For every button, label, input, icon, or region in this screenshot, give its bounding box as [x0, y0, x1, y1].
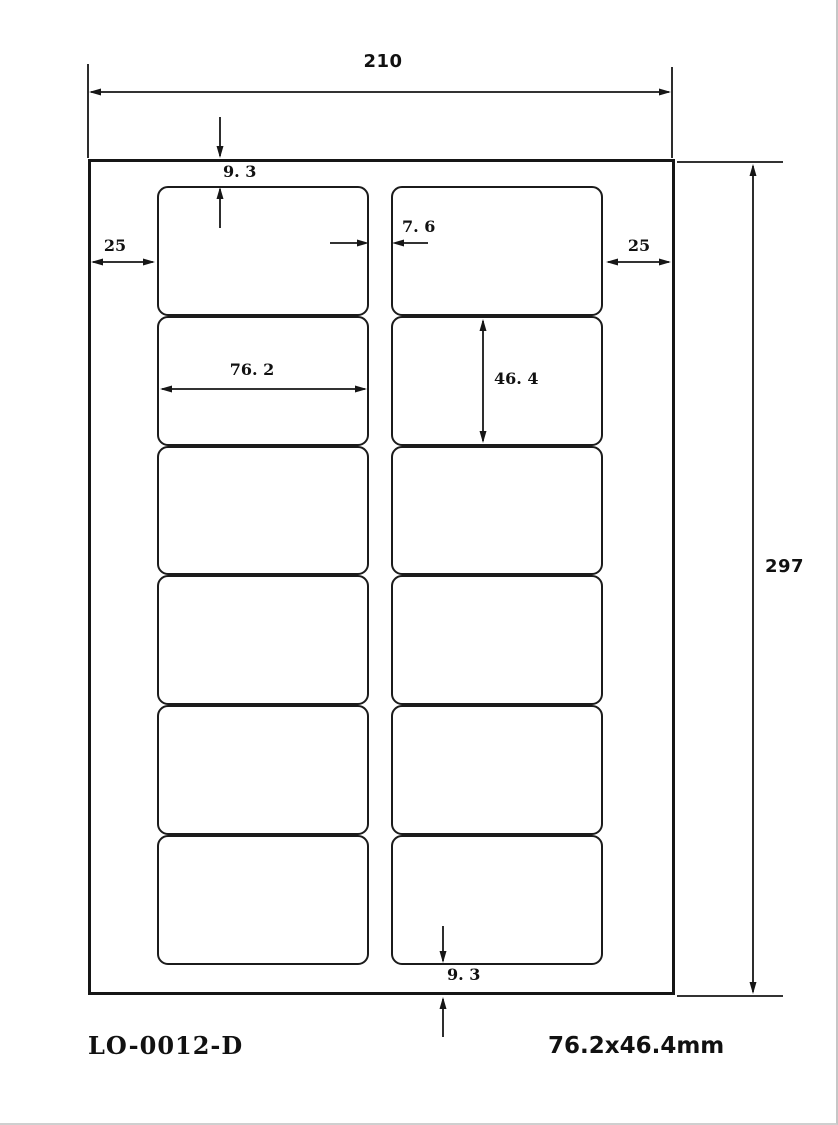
- dim-value-sheet-height: 297: [765, 558, 804, 576]
- dim-value-label-height: 46. 4: [494, 371, 539, 387]
- dim-value-label-width: 76. 2: [202, 362, 302, 378]
- label-cell-5: [157, 446, 369, 576]
- part-number: LO-0012-D: [88, 1033, 243, 1059]
- dim-value-left-margin: 25: [89, 238, 141, 254]
- label-cell-6: [391, 446, 603, 576]
- dim-value-bottom-margin: 9. 3: [447, 967, 480, 983]
- dim-value-column-gap: 7. 6: [402, 219, 435, 235]
- arrow-left-210: [89, 89, 101, 96]
- label-cell-10: [391, 705, 603, 835]
- label-sheet-dimension-drawing: 210 297 9. 3 25 25 7. 6 76. 2 46. 4 9. 3…: [0, 0, 838, 1125]
- dim-value-top-margin: 9. 3: [223, 164, 256, 180]
- label-cell-7: [157, 575, 369, 705]
- arrow-right-210: [659, 89, 671, 96]
- label-size-text: 76.2x46.4mm: [548, 1034, 700, 1059]
- dim-value-right-margin: 25: [613, 238, 665, 254]
- label-cell-12: [391, 835, 603, 965]
- label-cell-11: [157, 835, 369, 965]
- labels-grid: [157, 186, 603, 965]
- arrow-up-297: [750, 164, 757, 176]
- dim-value-sheet-width: 210: [343, 53, 423, 71]
- label-cell-9: [157, 705, 369, 835]
- arrow-down-top-margin: [217, 146, 224, 158]
- label-cell-2: [391, 186, 603, 316]
- arrow-up-bottom-margin: [440, 997, 447, 1009]
- label-cell-1: [157, 186, 369, 316]
- label-cell-8: [391, 575, 603, 705]
- label-cell-3: [157, 316, 369, 446]
- arrow-down-297: [750, 982, 757, 994]
